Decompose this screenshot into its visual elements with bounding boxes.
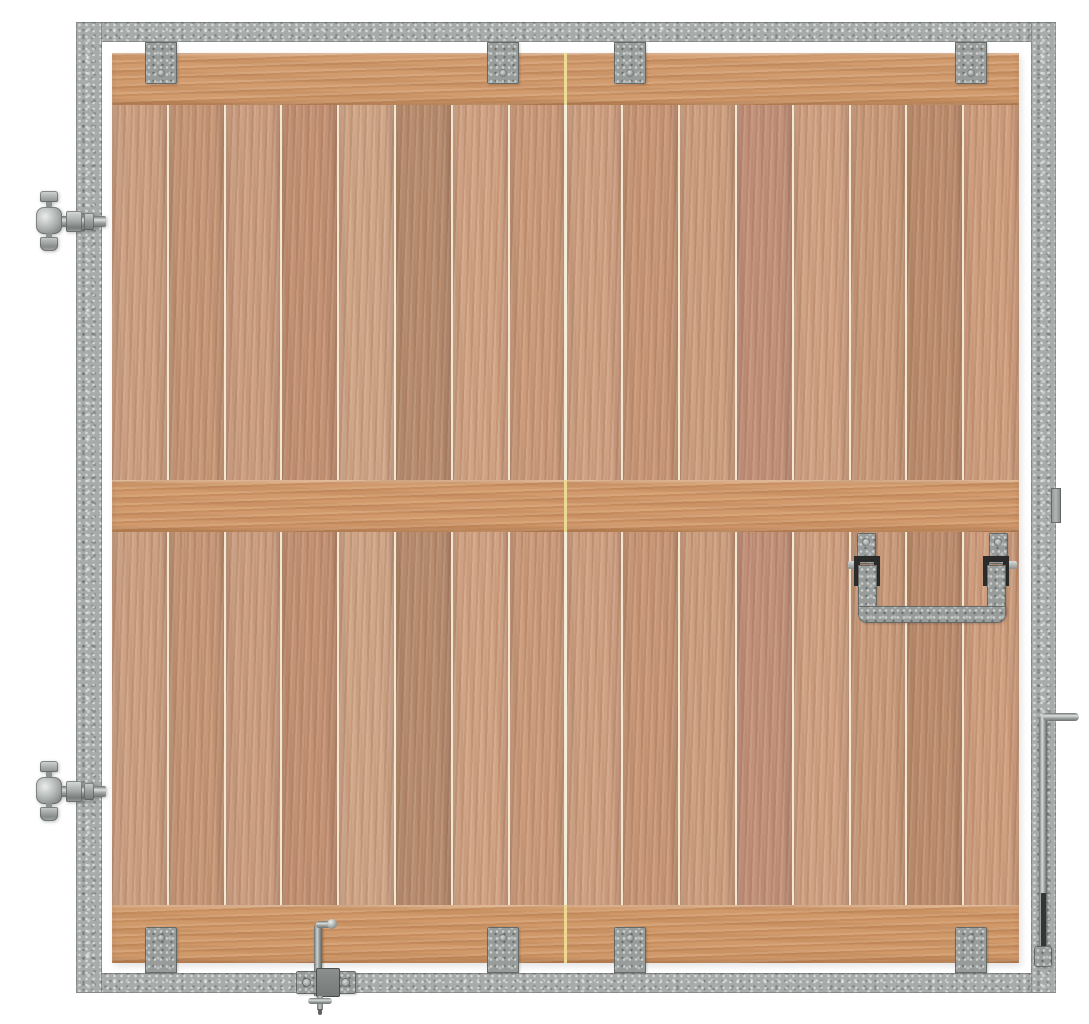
frame-rivet — [1041, 697, 1045, 701]
hinge-knob-bottom — [40, 237, 58, 251]
screw-head — [968, 70, 974, 76]
hinge-nut — [66, 211, 82, 232]
hinge-nut — [66, 781, 82, 802]
frame-rivet — [86, 697, 90, 701]
hinge-pin-body — [36, 777, 62, 804]
screw-head — [500, 70, 506, 76]
bottom-drop-bolt-knob — [327, 919, 337, 929]
top-fixing-bracket — [614, 42, 646, 84]
hinge-washer — [84, 783, 94, 800]
screw-head — [500, 935, 506, 941]
bottom-drop-bolt-guide-block — [316, 968, 340, 997]
latch-keeper-plate — [1051, 488, 1061, 523]
hinge-washer — [84, 213, 94, 230]
bottom-fixing-bracket — [145, 927, 177, 973]
door-leaf — [112, 53, 1019, 963]
hinge-knob-top — [40, 761, 58, 772]
frame-bar-bottom — [76, 973, 1056, 993]
hinge-knob-top — [40, 191, 58, 202]
frame-rivet — [86, 180, 90, 184]
hinge-pin-upper — [28, 191, 106, 253]
frame-rivet — [86, 438, 90, 442]
frame-bar-left — [76, 22, 102, 993]
handle-u-bar-bottom — [858, 606, 1006, 623]
frame-rivet — [86, 826, 90, 830]
screw-head — [158, 70, 164, 76]
screw-head — [627, 70, 633, 76]
bottom-drop-bolt-pin-collar — [308, 998, 332, 1004]
frame-rivet — [86, 309, 90, 313]
bottom-fixing-bracket — [487, 927, 519, 973]
hinge-pin-lower — [28, 761, 106, 823]
frame-rivet — [300, 27, 304, 31]
frame-bar-top — [76, 22, 1056, 42]
right-drop-bolt-guide — [1034, 946, 1052, 967]
top-fixing-bracket — [487, 42, 519, 84]
right-drop-bolt-slot — [1041, 893, 1046, 947]
frame-rivet — [1041, 180, 1045, 184]
top-fixing-bracket — [955, 42, 987, 84]
hinge-knob-bottom — [40, 807, 58, 821]
frame-rivet — [1041, 309, 1045, 313]
frame-rivet — [1041, 55, 1045, 59]
frame-rivet — [1041, 438, 1045, 442]
bottom-fixing-bracket — [614, 927, 646, 973]
frame-rivet — [86, 56, 90, 60]
frame-rivet — [86, 955, 90, 959]
screw-head — [158, 935, 164, 941]
bottom-fixing-bracket — [955, 927, 987, 973]
hinge-pin-body — [36, 207, 62, 234]
screw-head — [995, 539, 1001, 545]
bottom-drop-bolt-pin-tip — [318, 1009, 322, 1015]
frame-rivet — [938, 27, 942, 31]
screw-head — [863, 539, 869, 545]
door-center-seam — [564, 53, 567, 963]
scene — [0, 0, 1089, 1024]
screw-head — [342, 979, 349, 986]
frame-rivet — [1041, 568, 1045, 572]
screw-head — [303, 979, 310, 986]
frame-rivet — [660, 27, 664, 31]
right-drop-bolt-handle — [1043, 713, 1079, 721]
top-fixing-bracket — [145, 42, 177, 84]
screw-head — [627, 935, 633, 941]
screw-head — [968, 935, 974, 941]
frame-rivet — [86, 568, 90, 572]
